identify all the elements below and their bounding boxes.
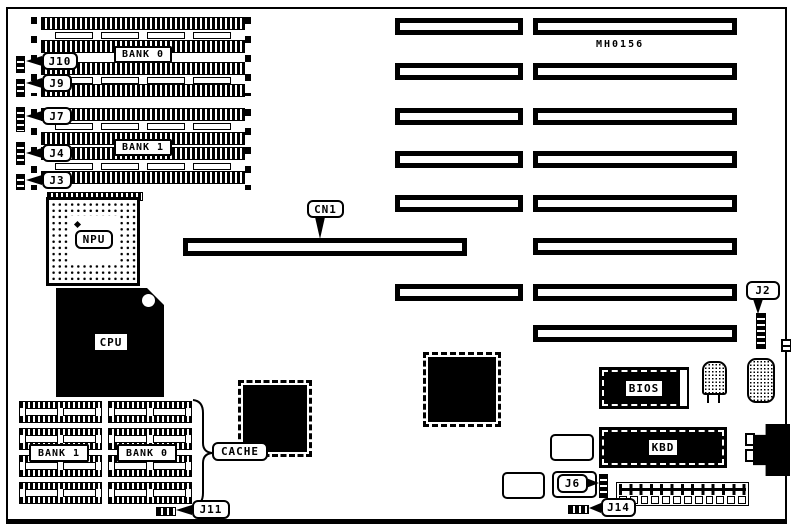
chipset-qfp-chip: [428, 357, 496, 422]
j2-pointer: [753, 299, 763, 314]
jumper-block-j9: [16, 79, 25, 97]
expansion-slot: [395, 18, 523, 35]
cpu-pin1-dot: [142, 294, 155, 307]
expansion-slot: [533, 63, 737, 80]
header-pins: [619, 484, 746, 495]
jumper-label-j10: J10: [42, 52, 78, 70]
component-box-2: [502, 472, 545, 499]
header-pads: [619, 496, 746, 504]
bank0-label: BANK 0: [114, 46, 172, 63]
cache-label: CACHE: [212, 442, 268, 461]
bios-label: BIOS: [625, 380, 664, 397]
j14-jumper-block: [568, 505, 589, 514]
j11-label: J11: [192, 500, 230, 519]
cache-bank0-label: BANK 0: [117, 444, 177, 462]
j11-pointer: [176, 505, 192, 515]
jumper-block-j7: [16, 107, 25, 132]
jumper-label-j9: J9: [42, 74, 72, 92]
j14-label: J14: [601, 498, 636, 517]
cpu-label: CPU: [94, 333, 128, 351]
cn1-label: CN1: [307, 200, 344, 218]
cache-bank1-label: BANK 1: [29, 444, 89, 462]
connector-pin-box: [745, 433, 755, 446]
simm-socket-row: [41, 17, 245, 30]
expansion-slot: [533, 151, 737, 168]
cache-dip-chip: [19, 482, 102, 504]
expansion-slot: [395, 284, 523, 301]
cache-dip-chip: [108, 482, 192, 504]
expansion-slot: [533, 195, 737, 212]
kbd-label: KBD: [648, 439, 679, 456]
capacitor: [747, 358, 775, 403]
simm-pad-row: [55, 32, 231, 39]
component-box-1: [550, 434, 594, 461]
cn1-pointer: [315, 217, 325, 239]
npu-label: NPU: [75, 230, 113, 249]
crystal-leg: [718, 394, 720, 403]
jumper-label-j3: J3: [42, 171, 72, 189]
cn1-slot: [183, 238, 467, 256]
edge-connector: [781, 339, 791, 352]
j4-pointer: [26, 148, 42, 158]
simm-latch-rail: [245, 109, 251, 190]
j14-pointer: [589, 503, 601, 513]
simm-latch-rail: [245, 17, 251, 96]
cache-dip-chip: [108, 401, 192, 423]
cache-dip-chip: [19, 401, 102, 423]
j6-jumper-block: [599, 474, 608, 498]
connector-pin-box: [745, 449, 755, 462]
expansion-slot: [395, 108, 523, 125]
j2-jumper-block: [756, 313, 766, 349]
j6-label: J6: [557, 474, 588, 493]
j11-jumper-block: [156, 507, 176, 516]
kbd-chip: KBD: [599, 427, 727, 468]
part-number: MH0156: [596, 39, 644, 50]
expansion-slot: [533, 284, 737, 301]
expansion-slot: [533, 238, 737, 255]
expansion-slot: [533, 325, 737, 342]
jumper-block-j3: [16, 174, 25, 190]
crystal-leg: [707, 394, 709, 403]
simm-pad-row: [55, 163, 231, 170]
jumper-block-j10: [16, 56, 25, 73]
expansion-slot: [395, 63, 523, 80]
pin1-marker-icon: [74, 221, 81, 228]
j7-pointer: [26, 111, 42, 121]
bios-chip: BIOS: [599, 367, 689, 409]
j9-pointer: [26, 78, 42, 88]
jumper-label-j7: J7: [42, 107, 72, 125]
bios-socket-end: [680, 370, 687, 406]
j2-label: J2: [746, 281, 780, 300]
expansion-slot: [395, 151, 523, 168]
motherboard-diagram: BANK 0 BANK 1 J10 J9 J7 J4 J3 NPU CPU CN…: [0, 0, 791, 529]
expansion-slot: [533, 18, 737, 35]
expansion-slot: [533, 108, 737, 125]
j10-pointer: [26, 56, 42, 66]
simm-pad-row: [55, 77, 231, 84]
expansion-slot: [395, 195, 523, 212]
jumper-block-j4: [16, 142, 25, 165]
simm-pad-row: [55, 123, 231, 130]
crystal-oscillator: [702, 361, 727, 395]
jumper-label-j4: J4: [42, 144, 72, 162]
bank1-label: BANK 1: [114, 139, 172, 156]
j3-pointer: [26, 175, 42, 185]
